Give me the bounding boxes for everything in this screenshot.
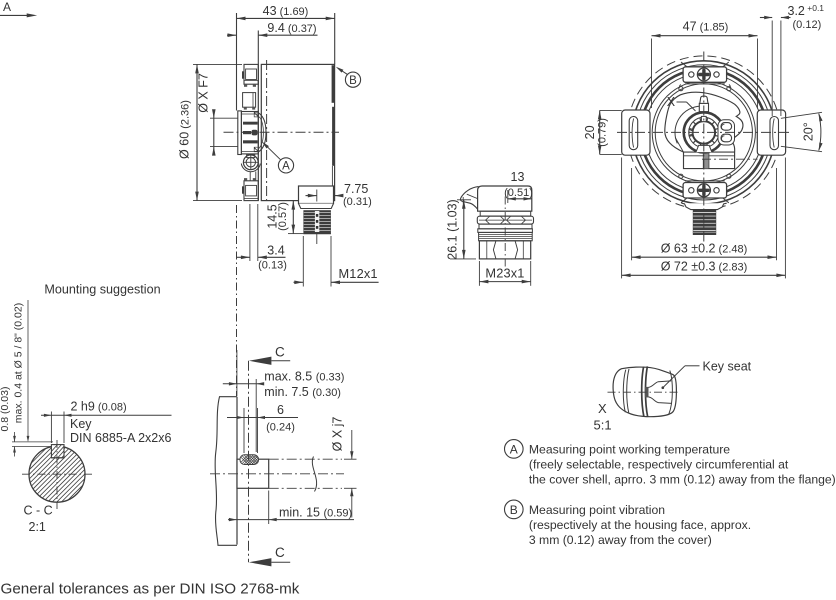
svg-text:C: C — [275, 545, 285, 560]
svg-text:Ø 63 ±0.2 (2.48): Ø 63 ±0.2 (2.48) — [661, 241, 748, 255]
svg-text:Key: Key — [70, 417, 92, 431]
svg-text:(0.31): (0.31) — [343, 196, 372, 208]
svg-text:13: 13 — [511, 170, 525, 184]
svg-text:M12x1: M12x1 — [339, 266, 378, 281]
svg-text:(0.12): (0.12) — [793, 19, 822, 31]
svg-text:max. 0.4 at Ø 5 / 8" (0.02): max. 0.4 at Ø 5 / 8" (0.02) — [13, 303, 25, 423]
svg-text:General tolerances as per DIN: General tolerances as per DIN ISO 2768-m… — [1, 581, 300, 598]
svg-text:20°: 20° — [802, 122, 816, 141]
svg-text:(0.57): (0.57) — [277, 202, 289, 231]
svg-text:Mounting suggestion: Mounting suggestion — [44, 283, 160, 297]
svg-text:C: C — [275, 344, 285, 359]
svg-text:Measuring point working temper: Measuring point working temperature — [529, 442, 730, 456]
svg-text:43 (1.69): 43 (1.69) — [263, 4, 309, 18]
svg-text:min. 15 (0.59): min. 15 (0.59) — [279, 505, 352, 519]
svg-text:(0.51): (0.51) — [504, 187, 533, 199]
svg-text:9.4 (0.37): 9.4 (0.37) — [267, 21, 316, 35]
svg-text:Measuring point vibration: Measuring point vibration — [529, 503, 665, 517]
svg-text:3 mm (0.12) away from the cove: 3 mm (0.12) away from the cover) — [529, 533, 712, 547]
svg-text:the cover shell, aprro. 3 mm (: the cover shell, aprro. 3 mm (0.12) away… — [529, 473, 836, 487]
svg-text:7.75: 7.75 — [344, 182, 368, 196]
svg-text:X: X — [667, 95, 676, 109]
svg-text:20: 20 — [583, 125, 597, 139]
svg-text:X: X — [598, 401, 607, 416]
svg-text:Ø 72 ±0.3 (2.83): Ø 72 ±0.3 (2.83) — [661, 260, 748, 274]
svg-text:Ø X j7: Ø X j7 — [331, 417, 345, 452]
svg-text:0.8 (0.03): 0.8 (0.03) — [0, 387, 11, 432]
svg-text:B: B — [349, 75, 357, 87]
svg-text:A: A — [3, 0, 11, 14]
svg-text:(respectively at the housing f: (respectively at the housing face, appro… — [529, 518, 751, 532]
svg-text:(0.24): (0.24) — [266, 422, 295, 434]
svg-text:max. 8.5 (0.33): max. 8.5 (0.33) — [264, 370, 344, 384]
svg-text:(0.79): (0.79) — [597, 118, 609, 147]
svg-text:5:1: 5:1 — [594, 418, 612, 433]
svg-text:2 h9 (0.08): 2 h9 (0.08) — [71, 400, 127, 414]
svg-text:(freely selectable, respective: (freely selectable, respectively circumf… — [529, 458, 789, 472]
svg-text:Key seat: Key seat — [703, 359, 752, 373]
svg-text:6: 6 — [277, 403, 284, 417]
svg-text:47 (1.85): 47 (1.85) — [683, 20, 729, 34]
svg-text:A: A — [510, 442, 518, 456]
svg-text:B: B — [510, 503, 518, 517]
svg-text:DIN 6885-A 2x2x6: DIN 6885-A 2x2x6 — [70, 431, 171, 445]
svg-text:M23x1: M23x1 — [485, 265, 524, 280]
svg-text:min. 7.5 (0.30): min. 7.5 (0.30) — [264, 385, 341, 399]
svg-text:26.1 (1.03): 26.1 (1.03) — [446, 199, 460, 259]
svg-text:(0.13): (0.13) — [258, 260, 287, 272]
svg-text:3.4: 3.4 — [267, 243, 284, 257]
svg-text:Ø X F7: Ø X F7 — [197, 73, 211, 113]
svg-text:C - C: C - C — [24, 504, 53, 518]
svg-text:Ø 60 (2.36): Ø 60 (2.36) — [178, 100, 192, 159]
svg-text:2:1: 2:1 — [29, 520, 46, 534]
svg-text:A: A — [282, 161, 290, 173]
